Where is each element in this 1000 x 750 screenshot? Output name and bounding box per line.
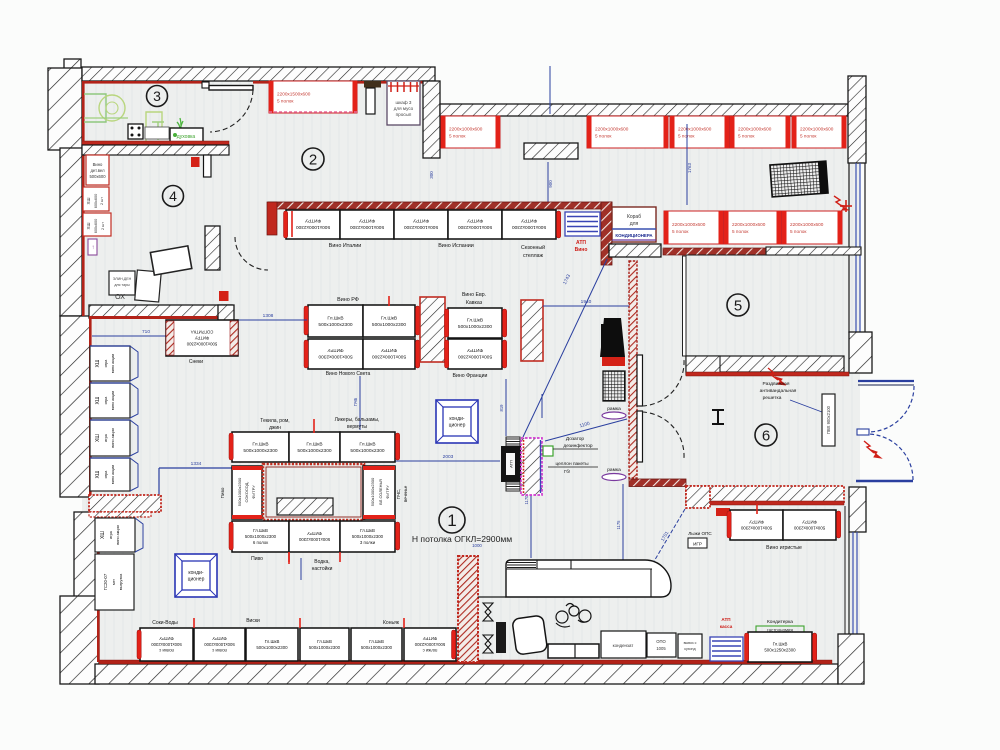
svg-text:ЭЛИН.ДЕН: ЭЛИН.ДЕН	[113, 277, 132, 281]
svg-text:игра: игра	[104, 470, 108, 479]
svg-text:ИГР: ИГР	[693, 542, 702, 547]
svg-text:стеллаж: стеллаж	[523, 253, 544, 259]
svg-text:вывоз с: вывоз с	[684, 641, 697, 645]
svg-text:касса: касса	[720, 624, 733, 629]
svg-text:500х1000х2300: 500х1000х2300	[256, 645, 288, 650]
svg-text:500х1000х2300: 500х1000х2300	[372, 354, 406, 360]
svg-text:конди-: конди-	[188, 570, 203, 576]
svg-text:Ликеры, бальзамы,: Ликеры, бальзамы,	[335, 417, 380, 423]
svg-text:СОГРИТКА: СОГРИТКА	[191, 330, 214, 335]
svg-text:для тары: для тары	[114, 283, 130, 287]
svg-text:500х1000х2300: 500х1000х2300	[512, 224, 546, 230]
svg-text:5 полок: 5 полок	[732, 229, 749, 234]
svg-text:ХШ: ХШ	[86, 223, 91, 230]
svg-text:Кондитерка: Кондитерка	[767, 619, 793, 625]
svg-text:ФИТРУ: ФИТРУ	[212, 636, 227, 641]
svg-text:500х1000х2300: 500х1000х2300	[237, 477, 242, 506]
svg-text:дет.вел: дет.вел	[90, 168, 105, 173]
svg-text:5 полок: 5 полок	[277, 98, 294, 103]
svg-text:вино акции: вино акции	[111, 391, 115, 411]
svg-text:6 полок: 6 полок	[253, 540, 268, 545]
svg-text:Лыжи ОПС: Лыжи ОПС	[688, 531, 712, 536]
svg-text:СОКОСОД.: СОКОСОД.	[244, 482, 249, 503]
svg-text:Соки-Воды: Соки-Воды	[152, 620, 178, 626]
svg-text:для: для	[630, 221, 639, 227]
svg-text:500х600: 500х600	[89, 174, 106, 179]
svg-text:Вино РФ: Вино РФ	[337, 297, 359, 303]
svg-text:АТП: АТП	[509, 460, 514, 468]
svg-text:Пиво: Пиво	[251, 556, 263, 562]
svg-text:900: 900	[548, 180, 553, 188]
svg-text:Гл.ШкВ: Гл.ШкВ	[306, 441, 322, 447]
svg-text:мгт: мгт	[111, 579, 116, 585]
svg-text:500х1000х2300: 500х1000х2300	[414, 642, 445, 647]
svg-text:дезинфектор: дезинфектор	[563, 443, 592, 449]
svg-text:ХШ: ХШ	[86, 198, 91, 205]
svg-text:500х1000х2300: 500х1000х2300	[404, 224, 438, 230]
svg-text:печенье: печенье	[403, 485, 408, 502]
svg-text:500х1000х2300: 500х1000х2300	[151, 642, 182, 647]
svg-text:819: 819	[499, 404, 504, 412]
svg-text:Вино Италии: Вино Италии	[329, 243, 362, 249]
svg-text:рамка: рамка	[607, 407, 621, 412]
svg-text:500х1000х2300: 500х1000х2300	[458, 354, 492, 360]
svg-text:вино акции: вино акции	[111, 354, 115, 374]
svg-text:5: 5	[734, 297, 742, 314]
svg-text:Гл.ШкВ: Гл.ШкВ	[381, 315, 397, 321]
svg-text:600х600: 600х600	[94, 194, 98, 209]
svg-text:500х1000х2300: 500х1000х2300	[458, 324, 492, 330]
svg-text:Раздвижная: Раздвижная	[763, 381, 790, 387]
svg-text:ФИТРУ: ФИТРУ	[304, 218, 321, 224]
svg-text:конди-: конди-	[449, 416, 464, 422]
svg-text:2200х1000х600: 2200х1000х600	[672, 222, 706, 227]
svg-text:ФИТРУ: ФИТРУ	[412, 218, 429, 224]
svg-text:решетка: решетка	[763, 396, 782, 401]
svg-text:ФИТРУ: ФИТРУ	[251, 485, 256, 499]
svg-text:полки с: полки с	[158, 648, 174, 653]
svg-text:вино акции: вино акции	[116, 525, 120, 545]
svg-text:вино акции: вино акции	[111, 428, 115, 448]
svg-text:4: 4	[169, 188, 177, 204]
svg-text:ФИТРУ: ФИТРУ	[385, 485, 390, 499]
svg-text:1005: 1005	[656, 646, 666, 651]
svg-text:5 полок: 5 полок	[800, 133, 817, 138]
svg-text:2200х1000х600: 2200х1000х600	[738, 126, 772, 131]
svg-text:рамка: рамка	[607, 468, 621, 473]
svg-text:1000: 1000	[472, 543, 482, 548]
svg-text:духовка: духовка	[177, 134, 196, 140]
svg-text:ПЧБ: ПЧБ	[353, 397, 358, 406]
svg-text:Гл.ШкВ: Гл.ШкВ	[317, 639, 332, 644]
svg-text:500х1000х2300: 500х1000х2300	[309, 645, 341, 650]
svg-text:настойки: настойки	[312, 565, 333, 572]
svg-text:вермуты: вермуты	[347, 424, 367, 430]
svg-text:Вино: Вино	[93, 162, 103, 167]
svg-text:игра: игра	[104, 396, 108, 405]
svg-text:ХШ: ХШ	[95, 434, 101, 442]
svg-text:ФИТРУ: ФИТРУ	[358, 218, 375, 224]
svg-text:Коньяк: Коньяк	[383, 620, 400, 626]
svg-text:ХШ: ХШ	[95, 359, 101, 367]
svg-text:↑: ↑	[92, 245, 95, 251]
svg-text:ционер: ционер	[449, 423, 466, 429]
svg-text:для мусо: для мусо	[394, 106, 414, 111]
svg-text:полки с: полки с	[422, 648, 438, 653]
svg-text:500х1000х2300: 500х1000х2300	[245, 534, 277, 539]
svg-text:500х1000х2300: 500х1000х2300	[186, 341, 217, 346]
svg-text:500х1000х2300: 500х1000х2300	[740, 525, 772, 530]
svg-text:целлон пакеты: целлон пакеты	[555, 462, 589, 467]
svg-text:2 шт: 2 шт	[100, 197, 104, 205]
svg-text:5 полок: 5 полок	[449, 133, 466, 138]
svg-text:ПВХ 900х2100: ПВХ 900х2100	[826, 405, 831, 434]
svg-text:шкаф 3: шкаф 3	[396, 100, 412, 105]
svg-text:АТП: АТП	[721, 617, 730, 622]
svg-text:2 шт: 2 шт	[101, 222, 105, 230]
svg-text:1170: 1170	[524, 495, 529, 505]
svg-text:ХШ: ХШ	[100, 531, 106, 539]
svg-text:ХШ: ХШ	[95, 396, 101, 404]
svg-text:просып: просып	[396, 112, 412, 117]
svg-text:ФИТРУ: ФИТРУ	[194, 335, 209, 340]
svg-text:2200х1500х600: 2200х1500х600	[277, 91, 311, 96]
svg-text:Вино Испании: Вино Испании	[438, 243, 474, 249]
svg-text:1175: 1175	[616, 520, 621, 530]
svg-text:Гл.ШкВ: Гл.ШкВ	[253, 528, 268, 533]
svg-text:500х1000х2300: 500х1000х2300	[204, 642, 235, 647]
svg-text:5 полок: 5 полок	[595, 133, 612, 138]
svg-text:500х1000х2300: 500х1000х2300	[297, 448, 331, 454]
svg-text:3 полки: 3 полки	[360, 540, 376, 545]
svg-text:Гб!: Гб!	[564, 469, 570, 474]
svg-text:5 полок: 5 полок	[790, 229, 807, 234]
svg-text:Вино Франции: Вино Франции	[453, 373, 488, 379]
svg-text:Кораб: Кораб	[627, 214, 641, 220]
svg-text:1334: 1334	[191, 461, 202, 467]
svg-text:Гл.ШкВ: Гл.ШкВ	[467, 317, 483, 323]
svg-text:антивандальная: антивандальная	[760, 389, 797, 394]
svg-text:6: 6	[762, 427, 770, 444]
svg-text:ФИТРУ: ФИТРУ	[802, 519, 817, 524]
svg-text:ФИТРУ: ФИТРУ	[422, 636, 437, 641]
svg-text:500х1000х2300: 500х1000х2300	[458, 224, 492, 230]
svg-text:1763: 1763	[687, 162, 692, 173]
svg-text:500х1000х2300: 500х1000х2300	[361, 645, 393, 650]
svg-text:500х1000х2300: 500х1000х2300	[793, 525, 825, 530]
svg-text:Гл.ШкВ: Гл.ШкВ	[369, 639, 384, 644]
svg-text:ФИТРУ: ФИТРУ	[749, 519, 764, 524]
svg-text:полки с: полки с	[211, 648, 227, 653]
svg-text:Текила, ром,: Текила, ром,	[260, 418, 289, 424]
svg-text:500х1000х2300: 500х1000х2300	[352, 534, 384, 539]
svg-text:500х1000х2300: 500х1000х2300	[296, 224, 330, 230]
svg-text:ОХ: ОХ	[115, 294, 125, 301]
svg-text:2200х1000х600: 2200х1000х600	[790, 222, 824, 227]
svg-text:2200х1000х600: 2200х1000х600	[800, 126, 834, 131]
svg-text:ционер: ционер	[188, 577, 205, 583]
svg-text:ОПО: ОПО	[656, 639, 666, 644]
svg-text:ФИТРУ: ФИТРУ	[159, 636, 174, 641]
svg-text:Вино Нового Света: Вино Нового Света	[326, 371, 371, 377]
svg-text:Виски: Виски	[246, 618, 260, 624]
svg-text:игра: игра	[104, 433, 108, 442]
svg-text:ФИТРУ: ФИТРУ	[307, 531, 322, 536]
svg-text:500х1000х2300: 500х1000х2300	[318, 354, 352, 360]
svg-text:Н потолка ОГКЛ=2900мм: Н потолка ОГКЛ=2900мм	[412, 534, 512, 544]
svg-text:2: 2	[309, 151, 317, 168]
svg-text:300: 300	[429, 171, 434, 179]
svg-text:ФИТРУ: ФИТРУ	[380, 347, 397, 353]
svg-text:Снеки: Снеки	[189, 359, 203, 365]
svg-text:2200х1000х600: 2200х1000х600	[678, 126, 712, 131]
svg-text:Гл.ШкВ: Гл.ШкВ	[359, 441, 375, 447]
svg-text:500х1250х2300: 500х1250х2300	[764, 648, 796, 653]
svg-text:Гл.ШкВ: Гл.ШкВ	[773, 642, 788, 647]
svg-text:ФИТРУ: ФИТРУ	[466, 218, 483, 224]
svg-text:ГС20-07: ГС20-07	[103, 573, 108, 590]
svg-text:500х1000х2300: 500х1000х2300	[350, 448, 384, 454]
svg-text:2200х1000х600: 2200х1000х600	[449, 126, 483, 131]
svg-text:1308: 1308	[263, 313, 274, 319]
svg-text:Сезонный: Сезонный	[521, 244, 545, 251]
svg-text:Вино игристые: Вино игристые	[766, 545, 802, 551]
svg-text:выгрузка: выгрузка	[118, 573, 123, 590]
svg-text:500х1000х2300: 500х1000х2300	[318, 322, 352, 328]
svg-text:Вино: Вино	[575, 247, 588, 253]
svg-text:500х1000х2300: 500х1000х2300	[350, 224, 384, 230]
svg-text:Гл.ШкВ: Гл.ШкВ	[360, 528, 375, 533]
svg-text:кухонд: кухонд	[684, 647, 696, 651]
svg-text:Гл.ШкВ: Гл.ШкВ	[327, 315, 343, 321]
svg-text:Гл.ШкВ: Гл.ШкВ	[265, 639, 280, 644]
svg-text:ФИТРУ: ФИТРУ	[466, 347, 483, 353]
svg-text:600х600: 600х600	[94, 219, 98, 234]
svg-text:ВЛ.СОЛЕНЬЯ: ВЛ.СОЛЕНЬЯ	[378, 479, 383, 505]
svg-text:3: 3	[153, 88, 161, 104]
svg-text:ПЧС,: ПЧС,	[396, 489, 401, 499]
svg-text:500х1000х2300: 500х1000х2300	[298, 537, 330, 542]
svg-text:джин: джин	[269, 425, 281, 431]
svg-text:Кавказ: Кавказ	[466, 300, 483, 306]
svg-text:500х1000х2300: 500х1000х2300	[370, 477, 375, 506]
svg-text:2200х1000х600: 2200х1000х600	[732, 222, 766, 227]
svg-text:АТП: АТП	[576, 240, 586, 246]
svg-text:Водка,: Водка,	[314, 559, 329, 565]
svg-text:2200х1000х600: 2200х1000х600	[595, 126, 629, 131]
svg-text:ХШ: ХШ	[95, 470, 101, 478]
svg-text:Вино Евр.: Вино Евр.	[462, 292, 486, 298]
svg-text:КОНДИЦИОНЕРА: КОНДИЦИОНЕРА	[615, 233, 653, 238]
svg-text:игра: игра	[104, 359, 108, 368]
svg-text:500х1000х2300: 500х1000х2300	[372, 322, 406, 328]
svg-text:5 полок: 5 полок	[738, 133, 755, 138]
svg-text:Гл.ШкВ: Гл.ШкВ	[252, 441, 268, 447]
svg-text:игра: игра	[109, 530, 113, 539]
svg-text:ФИТРУ: ФИТРУ	[520, 218, 537, 224]
svg-text:2003: 2003	[443, 454, 454, 460]
svg-text:500х1000х2300: 500х1000х2300	[243, 448, 277, 454]
svg-text:Пиво: Пиво	[220, 487, 225, 498]
svg-text:кондензат: кондензат	[613, 643, 634, 648]
svg-text:1: 1	[447, 511, 456, 530]
svg-text:ФИТРУ: ФИТРУ	[326, 347, 343, 353]
svg-text:5 полок: 5 полок	[672, 229, 689, 234]
svg-text:710: 710	[142, 329, 150, 335]
svg-text:Дозатор: Дозатор	[566, 436, 584, 442]
svg-text:вино акции: вино акции	[111, 465, 115, 485]
